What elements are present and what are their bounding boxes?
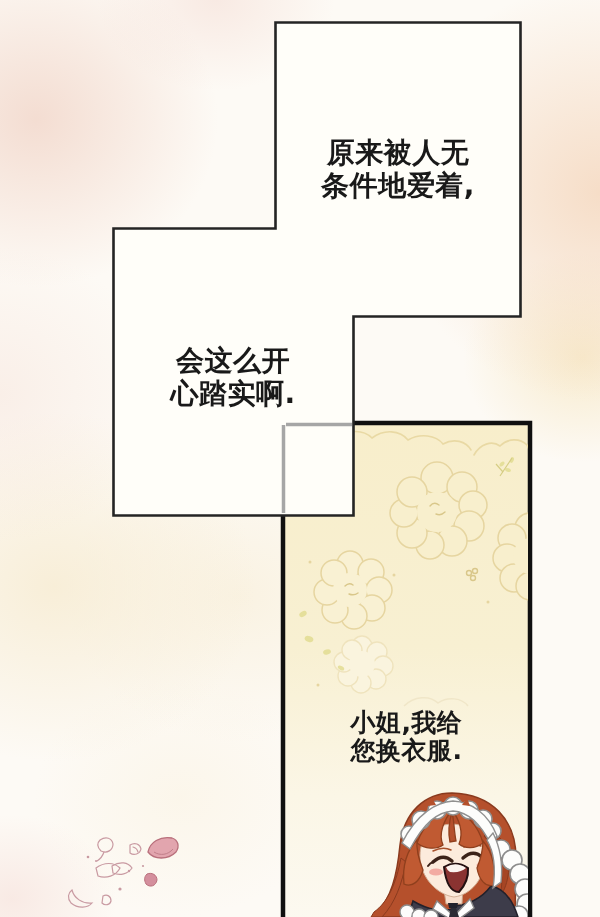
- comic-page: 原来被人无 条件地爱着, 会这么开 心踏实啊. 小姐,我给 您换衣服.: [0, 0, 600, 917]
- narration-line: 会这么开: [113, 344, 353, 377]
- narration-bubble-2: 会这么开 心踏实啊.: [113, 344, 353, 410]
- narration-line: 原来被人无: [275, 136, 521, 169]
- narration-line: 心踏实啊.: [113, 377, 353, 410]
- maid-dialogue: 小姐,我给 您换衣服.: [285, 709, 528, 765]
- narration-bubble-1: 原来被人无 条件地爱着,: [275, 136, 521, 202]
- dialogue-line: 小姐,我给: [285, 709, 528, 737]
- dialogue-line: 您换衣服.: [285, 737, 528, 765]
- narration-line: 条件地爱着,: [275, 169, 521, 202]
- petal-decoration: [68, 838, 178, 908]
